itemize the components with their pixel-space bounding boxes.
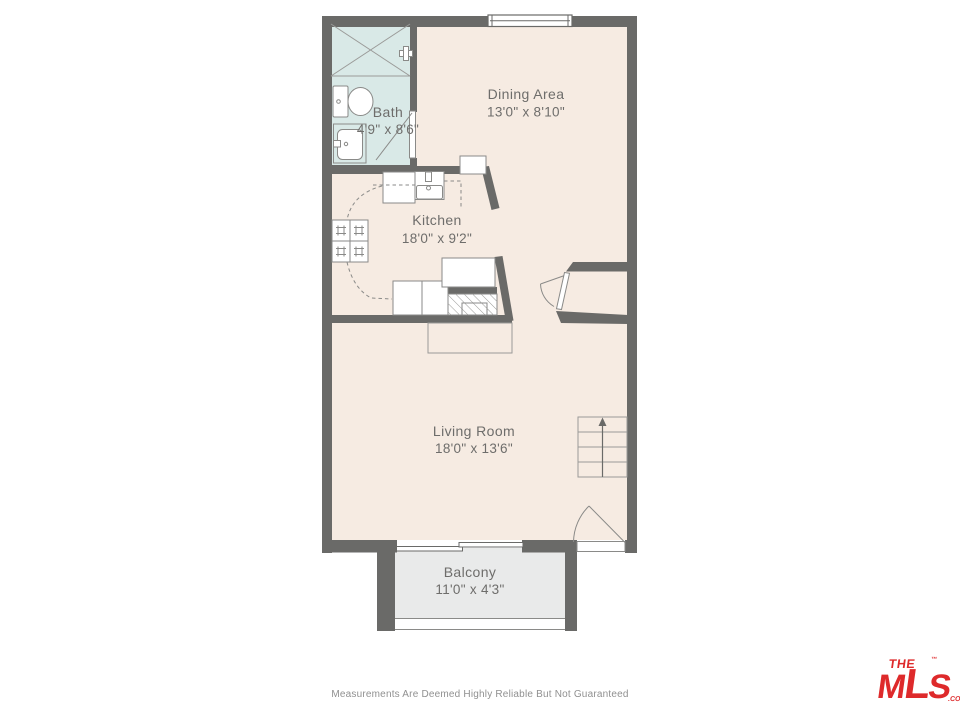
balcony-left-pillar (377, 544, 395, 631)
entry-top-wall (566, 262, 628, 272)
left-wall (322, 16, 332, 553)
room-label-balcony: Balcony (444, 564, 497, 580)
toilet-icon (333, 86, 373, 117)
hatch-top-wall (444, 287, 497, 294)
room-dims-living: 18'0" x 13'6" (435, 441, 513, 456)
pass-through-icon (460, 156, 486, 174)
mls-logo-com: .COM (948, 696, 960, 703)
bath-right-wall-upper (410, 23, 417, 112)
kitchen-bottom-wall (322, 315, 512, 323)
mls-logo-mls: M L S .COM (875, 670, 958, 705)
balcony-right-pillar (565, 544, 577, 631)
room-label-dining: Dining Area (488, 86, 565, 102)
kitchen-lower-counter-icon (393, 281, 448, 315)
room-label-kitchen: Kitchen (412, 212, 462, 228)
room-dims-kitchen: 18'0" x 9'2" (402, 231, 472, 246)
floor-plan: Bath 4'9" x 8'6" Dining Area 13'0" x 8'1… (0, 0, 960, 720)
bottom-right-corner (625, 540, 637, 553)
stove-icon (332, 220, 368, 262)
disclaimer-text: Measurements Are Deemed Highly Reliable … (0, 689, 960, 700)
room-label-bath: Bath (373, 104, 403, 120)
hall-counter-icon (442, 258, 495, 287)
room-dims-bath: 4'9" x 8'6" (357, 122, 419, 137)
room-dims-balcony: 11'0" x 4'3" (435, 582, 504, 597)
balcony-railing-icon (395, 619, 565, 630)
room-dims-dining: 13'0" x 8'10" (487, 105, 565, 120)
pantry-hatch-icon (448, 294, 497, 315)
room-label-living: Living Room (433, 423, 515, 439)
mls-logo: THE ™ M L S .COM (874, 658, 959, 710)
right-wall (627, 16, 637, 553)
window-icon (488, 15, 572, 27)
top-wall (322, 16, 637, 27)
